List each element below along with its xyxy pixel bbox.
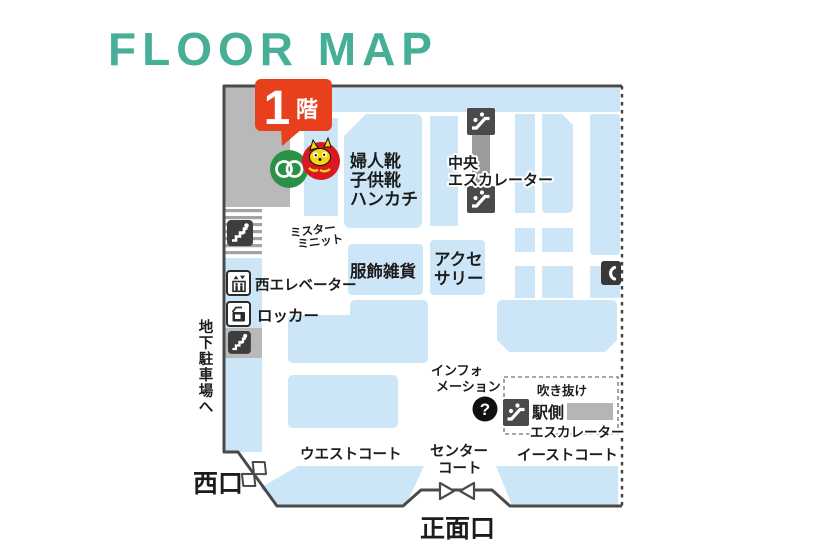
escalator-icon <box>503 399 529 426</box>
elevator-icon <box>227 271 250 295</box>
label-accessories-1: アクセ <box>434 250 483 269</box>
label-apparel-goods: 服飾雑貨 <box>350 261 417 281</box>
label-station-escalator-1: 駅側 <box>531 403 564 422</box>
floor-suffix: 階 <box>296 97 318 122</box>
svg-text:地: 地 <box>199 318 214 336</box>
floor-block <box>497 300 617 352</box>
floor-block <box>515 228 535 252</box>
label-central-escalator-2: エスカレーター <box>448 172 553 189</box>
floor-map-canvas: ? 1 階 FLOOR MAP 婦人靴 子供靴 ハンカチ 中央 エスカレーター <box>0 0 840 560</box>
green-rings-logo <box>270 150 308 188</box>
svg-text:場: 場 <box>199 383 214 400</box>
label-mister-minit: ミスター ミニット <box>289 220 344 252</box>
svg-text:下: 下 <box>199 335 214 352</box>
label-station-escalator-2: エスカレーター <box>530 425 625 440</box>
label-information-1: インフォ <box>431 363 483 378</box>
label-main-entrance: 正面口 <box>420 515 495 543</box>
question-mark-icon: ? <box>480 400 490 419</box>
escalator-icon <box>467 186 495 213</box>
floor-block <box>515 266 535 298</box>
station-escalator-shaft <box>567 403 613 420</box>
information-icon: ? <box>473 397 498 422</box>
label-west-elevator: 西エレベーター <box>255 277 357 294</box>
label-locker: ロッカー <box>257 307 319 325</box>
floor-block <box>294 88 620 112</box>
label-center-court-1: センター <box>430 443 488 460</box>
floor-block <box>224 358 262 452</box>
label-west-court: ウエストコート <box>300 446 402 463</box>
label-east-court: イーストコート <box>517 448 618 464</box>
label-information-2: メーション <box>436 379 501 394</box>
stairs-icon <box>228 331 251 354</box>
label-womens-shoes: 婦人靴 <box>349 151 401 171</box>
phone-icon <box>601 261 621 285</box>
label-west-entrance: 西口 <box>193 470 243 498</box>
label-accessories-2: サリー <box>434 270 484 288</box>
label-central-escalator-1: 中央 <box>448 154 479 172</box>
label-to-basement-parking: 地 下 駐 車 場 へ <box>199 318 214 416</box>
floor-block <box>542 114 573 213</box>
locker-icon <box>227 302 250 326</box>
svg-text:へ: へ <box>199 400 214 416</box>
floor-block <box>288 375 398 428</box>
label-center-court-2: コート <box>438 461 482 477</box>
svg-text:車: 車 <box>199 367 214 384</box>
floor-block <box>542 266 573 298</box>
floor-block <box>590 114 620 255</box>
page-title: FLOOR MAP <box>108 23 438 75</box>
label-atrium: 吹き抜け <box>537 383 587 398</box>
escalator-icon <box>467 108 495 135</box>
floor-block <box>515 114 535 213</box>
floor-block-west-court <box>260 466 424 505</box>
svg-text:駐: 駐 <box>199 350 214 368</box>
stairs-icon <box>227 220 253 246</box>
floor-number: 1 <box>264 82 291 135</box>
floor-block-east-court <box>496 466 618 505</box>
floor-block <box>542 228 573 252</box>
label-kids-shoes: 子供靴 <box>350 170 401 190</box>
label-handkerchief: ハンカチ <box>350 190 418 209</box>
